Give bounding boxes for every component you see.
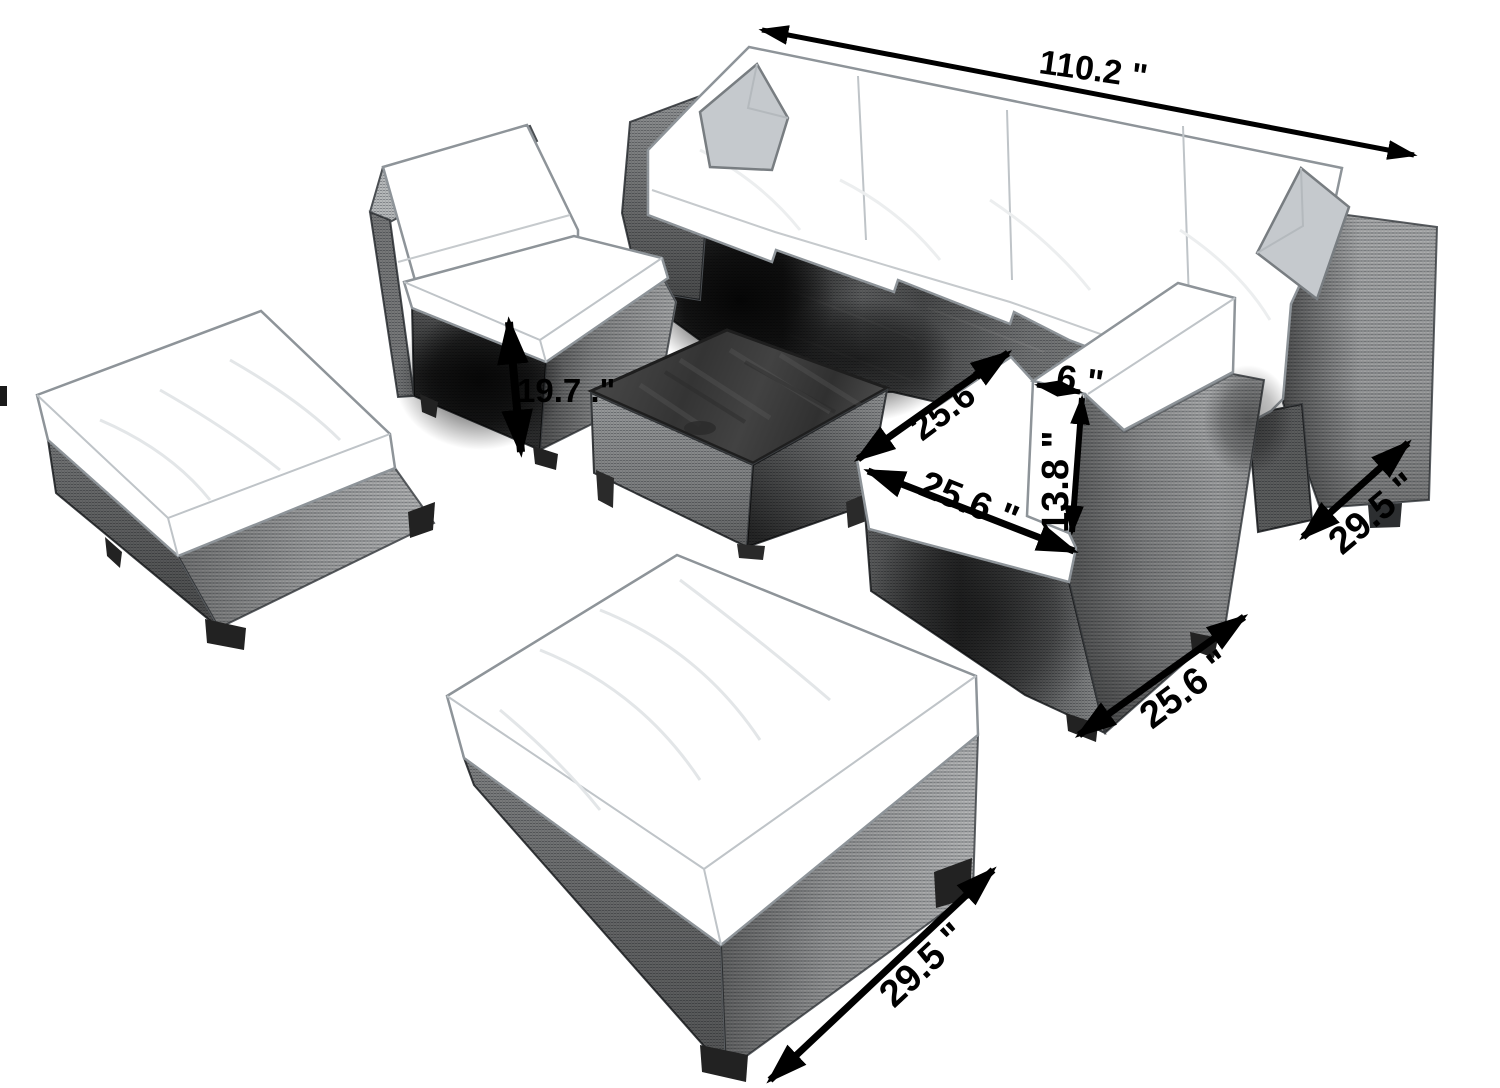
svg-text:6 ": 6 " bbox=[1054, 356, 1106, 403]
svg-text:19.7 .": 19.7 ." bbox=[517, 372, 615, 409]
svg-text:13.8 ": 13.8 " bbox=[1035, 430, 1077, 533]
